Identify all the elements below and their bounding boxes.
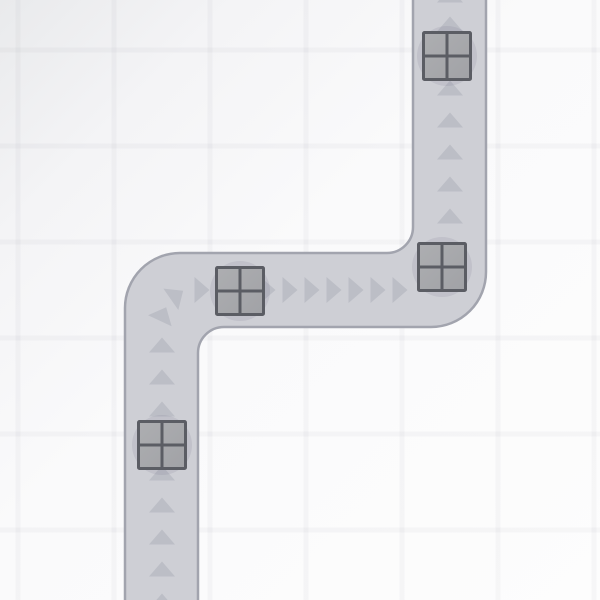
crate[interactable] <box>412 237 472 297</box>
crate[interactable] <box>210 261 270 321</box>
crate[interactable] <box>132 415 192 475</box>
game-viewport <box>0 0 600 600</box>
direction-arrow <box>437 0 463 3</box>
game-board[interactable] <box>0 0 600 600</box>
crate[interactable] <box>417 26 477 86</box>
